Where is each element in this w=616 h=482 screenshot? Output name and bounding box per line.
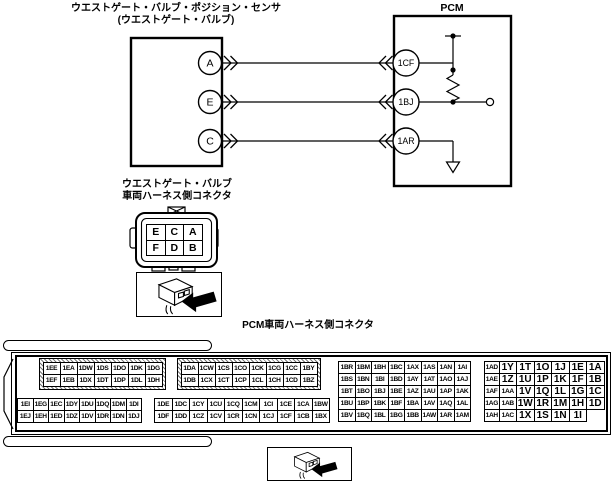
harness-label-line1: ウエストゲート・バルブ <box>97 179 257 191</box>
pin-cell: 1D <box>586 397 605 410</box>
pin-row: ECA <box>146 224 203 241</box>
pin-cell: D <box>165 240 185 257</box>
housing-top-rail <box>3 340 212 351</box>
pin-block-upper-left: 1EE1EA1DW1DS1DO1DK1DG1EF1EB1DX1DT1DP1DL1… <box>39 358 166 390</box>
pin-cell: 1ED <box>48 410 65 423</box>
housing-left-bracket <box>0 350 20 440</box>
pin-cell: 1CN <box>242 410 261 423</box>
pin-row: 1EF1EB1DX1DT1DP1DL1DH <box>43 374 163 387</box>
pcm-view-direction-box <box>267 447 352 481</box>
pin-cell: 1CT <box>215 374 233 387</box>
pin-cell: 1DF <box>154 410 173 423</box>
pin-cell: 1DT <box>94 374 112 387</box>
pin-cell: 1N <box>551 409 570 422</box>
pin-cell: 1BL <box>371 409 389 422</box>
terminal-label: E <box>206 97 213 109</box>
pin-cell: 1DH <box>145 374 163 387</box>
housing-bottom-rail <box>3 436 212 447</box>
terminal-label: 1AR <box>397 136 414 146</box>
pin-row: 1EJ1EH1ED1DZ1DV1DR1DN1DJ <box>17 410 142 423</box>
connector-3d-arrow-icon <box>137 273 221 316</box>
pin-cell: 1CF <box>277 410 296 423</box>
pcm-terminals: 1CF 1BJ 1AR <box>393 50 419 154</box>
pcm-connector-title: PCM車両ハーネス側コネクタ <box>0 320 616 332</box>
pin-cell: 1S <box>534 409 553 422</box>
pin-cell: 1EB <box>60 374 78 387</box>
pin-cell: 1BX <box>312 410 331 423</box>
pin-cell: 1CV <box>207 410 226 423</box>
connector-3d-arrow-icon <box>268 448 351 480</box>
pin-cell: 1CX <box>198 374 216 387</box>
pin-block-upper-mid: 1DA1CW1CS1CO1CK1CG1CC1BY1DB1CX1CT1CP1CL1… <box>177 358 321 390</box>
pin-row: 1BV1BQ1BL1BG1BB1AW1AR1AM <box>338 409 471 422</box>
pin-cell: 1BG <box>388 409 406 422</box>
pin-cell: 1CR <box>224 410 243 423</box>
pin-block-right-b: 1AD1Y1T1O1J1E1A1AE1Z1U1P1K1F1B1AF1AA1V1Q… <box>484 361 605 422</box>
pin-row: 1DF1DD1CZ1CV1CR1CN1CJ1CF1CB1BX <box>154 410 330 423</box>
pin-cell: 1CJ <box>259 410 278 423</box>
pin-cell: 1BB <box>404 409 422 422</box>
pin-cell: 1AH <box>484 409 500 422</box>
pin-cell: 1DD <box>172 410 191 423</box>
pin-cell: 1CZ <box>189 410 208 423</box>
pin-row: 1DB1CX1CT1CP1CL1CH1CD1BZ <box>181 374 318 387</box>
pin-cell: 1CP <box>232 374 250 387</box>
pin-cell: 1DB <box>181 374 199 387</box>
terminal-label: 1CF <box>398 58 415 68</box>
pcm-title: PCM <box>440 2 464 14</box>
pin-row: 1AH1AC1X1S1N1I <box>484 409 605 422</box>
pin-cell: F <box>146 240 166 257</box>
pin-block-right-a: 1BR1BM1BH1BC1AX1AS1AN1AI1BS1BN1BI1BD1AY1… <box>338 361 471 422</box>
pin-cell: 1BQ <box>355 409 373 422</box>
terminal-label: 1BJ <box>398 97 413 107</box>
pin-cell: 1X <box>516 409 535 422</box>
wires <box>222 63 394 141</box>
component-terminals: A E C <box>199 52 222 153</box>
pin-cell: 1AW <box>421 409 439 422</box>
harness-pin-grid: ECAFDB <box>146 224 203 256</box>
pin-cell: 1DP <box>111 374 129 387</box>
pin-cell: 1BZ <box>300 374 318 387</box>
pin-cell: 1AR <box>437 409 455 422</box>
harness-view-direction-box <box>136 272 222 317</box>
pin-block-lower-mid: 1DE1DC1CY1CU1CQ1CM1CI1CE1CA1BW1DF1DD1CZ1… <box>154 398 330 423</box>
pin-cell: 1DL <box>128 374 146 387</box>
pin-cell: 1AM <box>454 409 472 422</box>
pin-cell: 1DN <box>110 410 127 423</box>
pin-cell: 1AC <box>499 409 518 422</box>
wiring-diagram-page: ウエストゲート・バルブ・ポジション・センサ (ウエストゲート・バルブ) PCM <box>0 0 616 482</box>
pin-cell: 1DZ <box>64 410 81 423</box>
pin-cell: A <box>183 224 203 241</box>
pin-row: FDB <box>146 240 203 257</box>
pin-cell: E <box>146 224 166 241</box>
pin-cell: C <box>165 224 185 241</box>
pin-cell: 1BV <box>338 409 356 422</box>
terminal-label: A <box>206 58 213 70</box>
pin-cell: 1EJ <box>17 410 34 423</box>
pin-cell: 1EH <box>33 410 50 423</box>
pin-block-lower-left: 1EI1EG1EC1DY1DU1DQ1DM1DI1EJ1EH1ED1DZ1DV1… <box>17 398 142 423</box>
pin-cell: 1CL <box>249 374 267 387</box>
terminal-label: C <box>206 136 214 148</box>
pin-cell: B <box>183 240 203 257</box>
pin-cell: 1I <box>569 409 588 422</box>
pin-cell: 1DJ <box>126 410 143 423</box>
pin-cell: 1DV <box>79 410 96 423</box>
pin-cell: 1CB <box>294 410 313 423</box>
pin-cell: 1CH <box>266 374 284 387</box>
open-stub-icon <box>486 98 493 105</box>
pin-cell: 1EF <box>43 374 61 387</box>
pin-cell: 1DX <box>77 374 95 387</box>
pin-cell: 1DR <box>95 410 112 423</box>
pin-cell: 1CD <box>283 374 301 387</box>
wiring-schematic: PCM <box>0 0 616 200</box>
